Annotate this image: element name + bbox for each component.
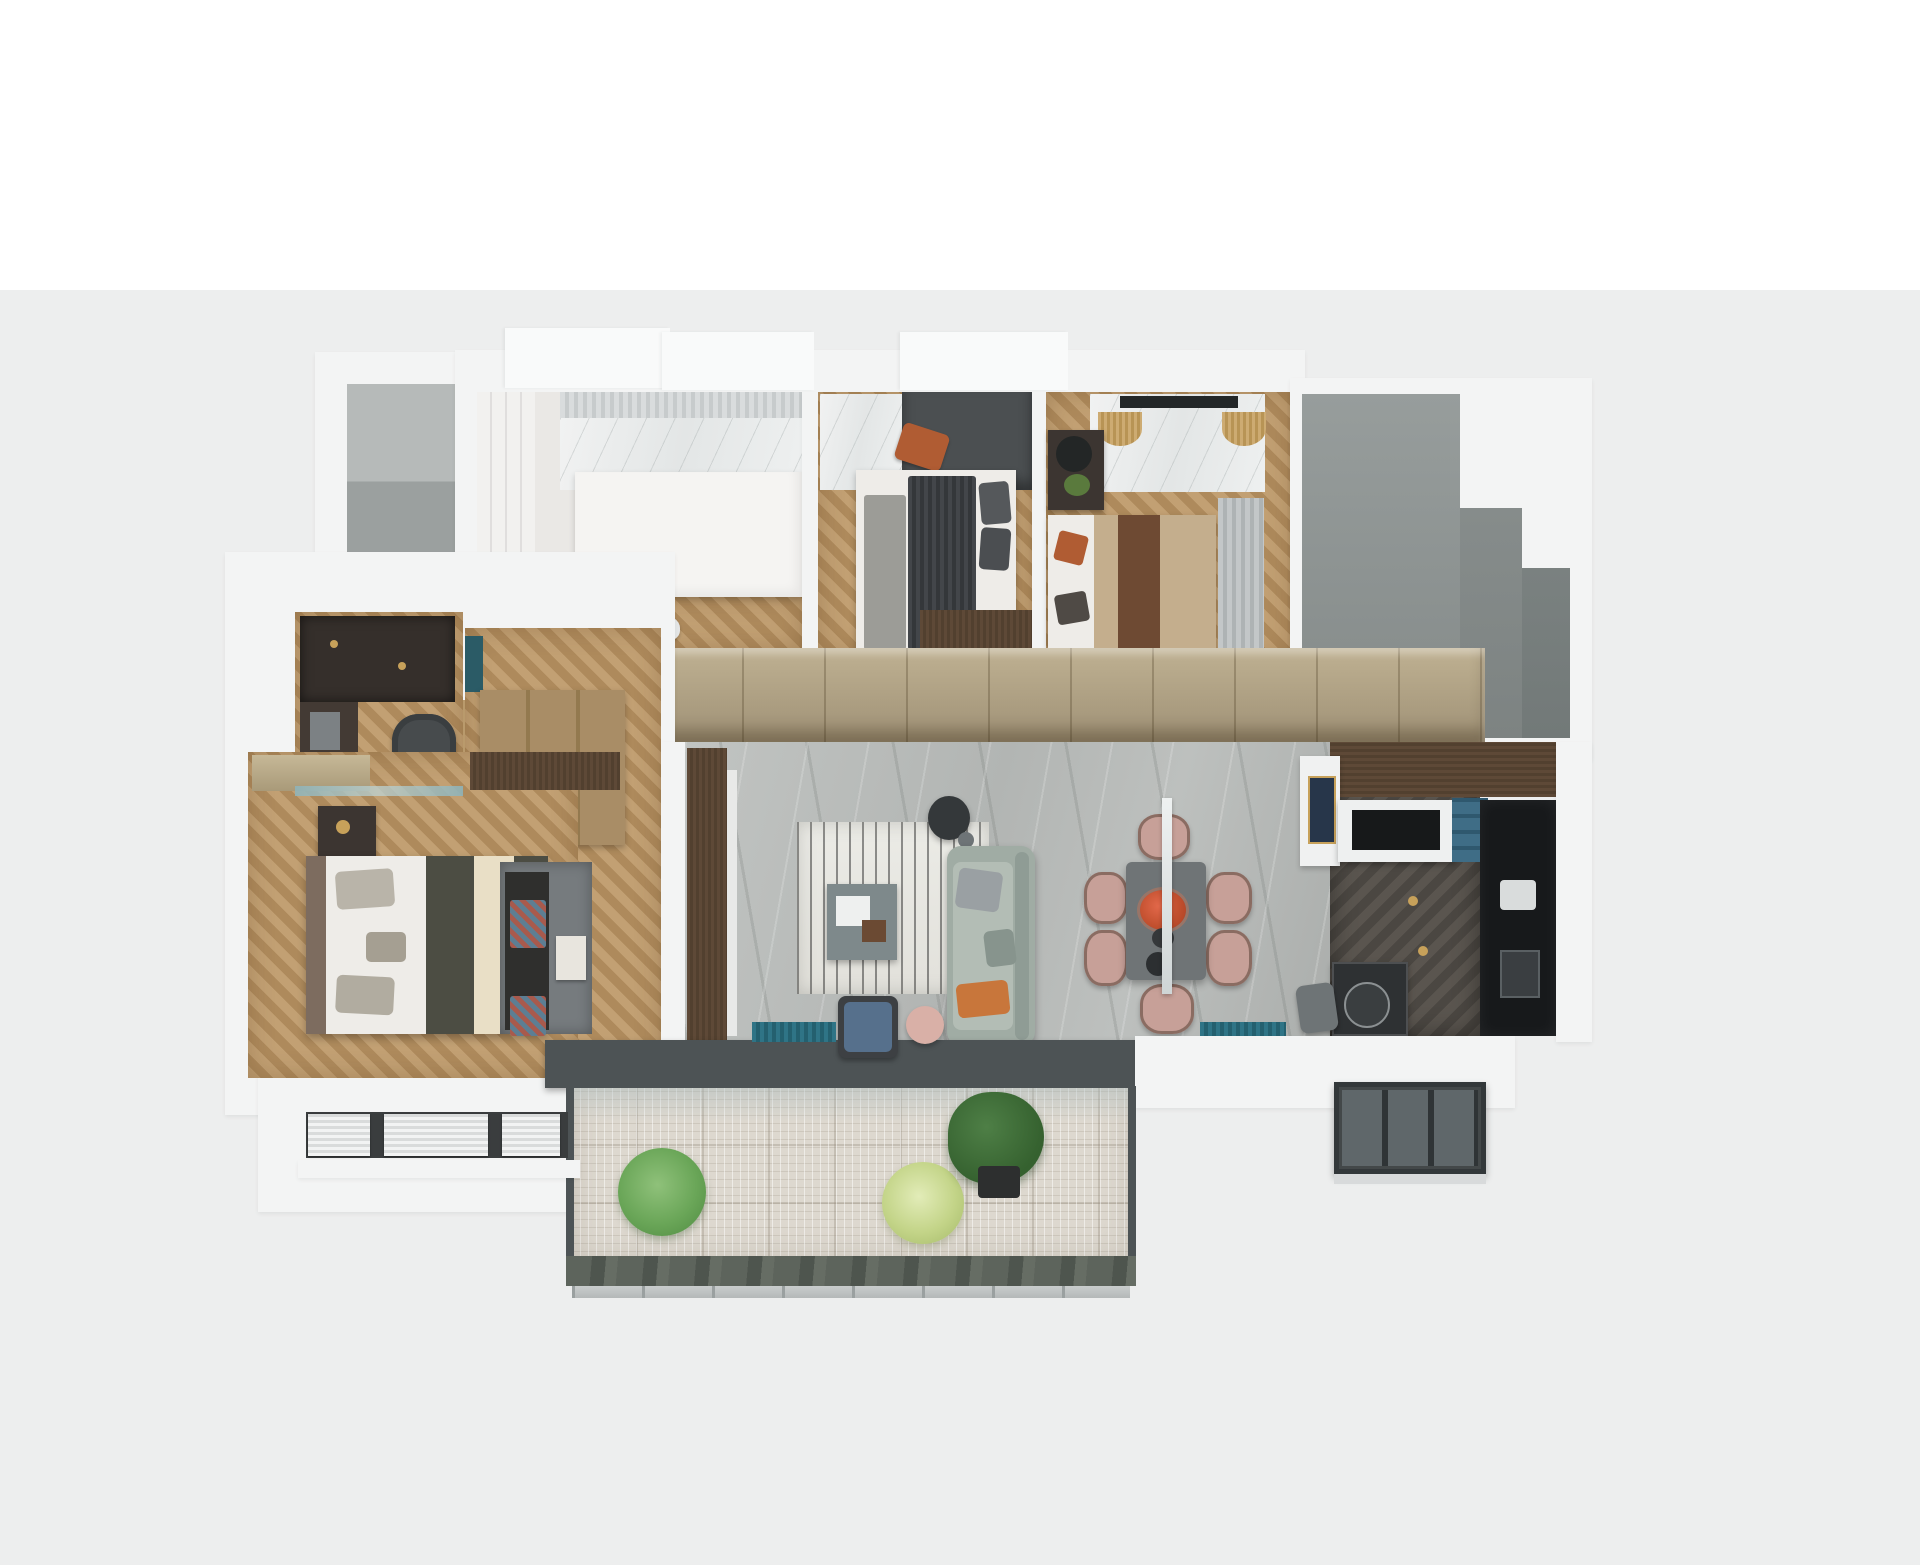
small-plant — [1064, 474, 1090, 496]
louvered-ac-unit — [384, 1114, 488, 1156]
gray-curtain — [1218, 498, 1264, 658]
navy-artwork — [1308, 776, 1336, 844]
floorplan-render — [0, 0, 1920, 1565]
plant-pot — [978, 1166, 1020, 1198]
pendant-bulb — [1418, 946, 1428, 956]
zigzag-throw — [510, 900, 546, 948]
pillow — [979, 527, 1012, 571]
sofa-pillow-orange — [955, 979, 1010, 1018]
right-balcony-sill — [1334, 1174, 1486, 1184]
brass-accent — [398, 662, 406, 670]
master-headboard — [306, 856, 326, 1034]
bamboo-pendant-lamp — [1098, 412, 1142, 446]
left-balcony-ledge — [298, 1160, 580, 1178]
green-marble-ledge — [566, 1256, 1136, 1286]
sofa-pillow-gray — [954, 867, 1003, 913]
office-bookshelf — [300, 616, 455, 702]
desk-monitor — [310, 712, 340, 750]
appliance — [1500, 950, 1540, 998]
partition-wall — [802, 392, 818, 655]
zigzag-throw — [510, 996, 546, 1036]
tv-console — [687, 748, 727, 1058]
teal-bench — [752, 1022, 836, 1042]
louvered-ac-unit — [308, 1114, 370, 1156]
stair-step — [1522, 568, 1570, 738]
green-shrub — [618, 1148, 706, 1236]
bamboo-pendant-lamp — [1222, 412, 1266, 446]
wall-tv — [1120, 396, 1238, 408]
dining-chair — [1206, 930, 1252, 986]
bar-chair — [1295, 982, 1339, 1035]
glass-reflection — [574, 1088, 1128, 1122]
sofa-back — [1015, 852, 1029, 1040]
linear-pendant-light — [1162, 798, 1172, 994]
dining-chair — [1084, 872, 1128, 924]
balcony-rail-frame — [1128, 1086, 1136, 1272]
kitchen-sink — [1500, 880, 1536, 910]
kitchen-upper-cabinets-and-entry-door — [1330, 742, 1560, 797]
pale-grass-plant — [882, 1162, 964, 1244]
walnut-dresser — [920, 610, 1032, 652]
glass-partition — [295, 786, 463, 796]
pillow — [978, 481, 1012, 525]
balcony-railing — [572, 1286, 1130, 1298]
roof-slab — [662, 332, 814, 390]
black-cabinet-run — [1480, 800, 1556, 1036]
pendant-bulb — [1408, 896, 1418, 906]
roof-slab — [505, 328, 670, 388]
black-table-lamp — [1056, 436, 1092, 472]
dining-chair — [1084, 930, 1128, 986]
right-balcony-glazing — [1342, 1090, 1478, 1166]
armchair-seat — [844, 1002, 892, 1052]
blush-pouf — [906, 1006, 944, 1044]
brass-lamp — [336, 820, 350, 834]
teal-cabinet — [465, 636, 483, 692]
pillow — [366, 932, 406, 962]
brown-bed-runner — [1118, 515, 1160, 655]
dining-chair — [1206, 872, 1252, 924]
sofa-pillow — [983, 928, 1017, 967]
roof-slab — [900, 332, 1068, 390]
partition-wall — [1032, 392, 1046, 658]
cooktop — [1352, 810, 1440, 850]
right-outer-wall — [1556, 742, 1592, 1042]
sheer-curtain — [560, 392, 802, 418]
art-card — [556, 936, 586, 980]
hallway-wardrobe-wall — [662, 648, 1485, 742]
louvered-ac-unit — [502, 1114, 560, 1156]
tv-console-shelf — [727, 770, 737, 1036]
brass-accent — [330, 640, 338, 648]
pillow — [335, 975, 395, 1016]
decor-box — [862, 920, 886, 942]
master-wardrobe — [470, 752, 620, 790]
brown-pillow — [1054, 590, 1091, 625]
pillow — [335, 868, 396, 910]
gray-throw — [864, 495, 906, 650]
bar-tray — [1344, 982, 1390, 1028]
